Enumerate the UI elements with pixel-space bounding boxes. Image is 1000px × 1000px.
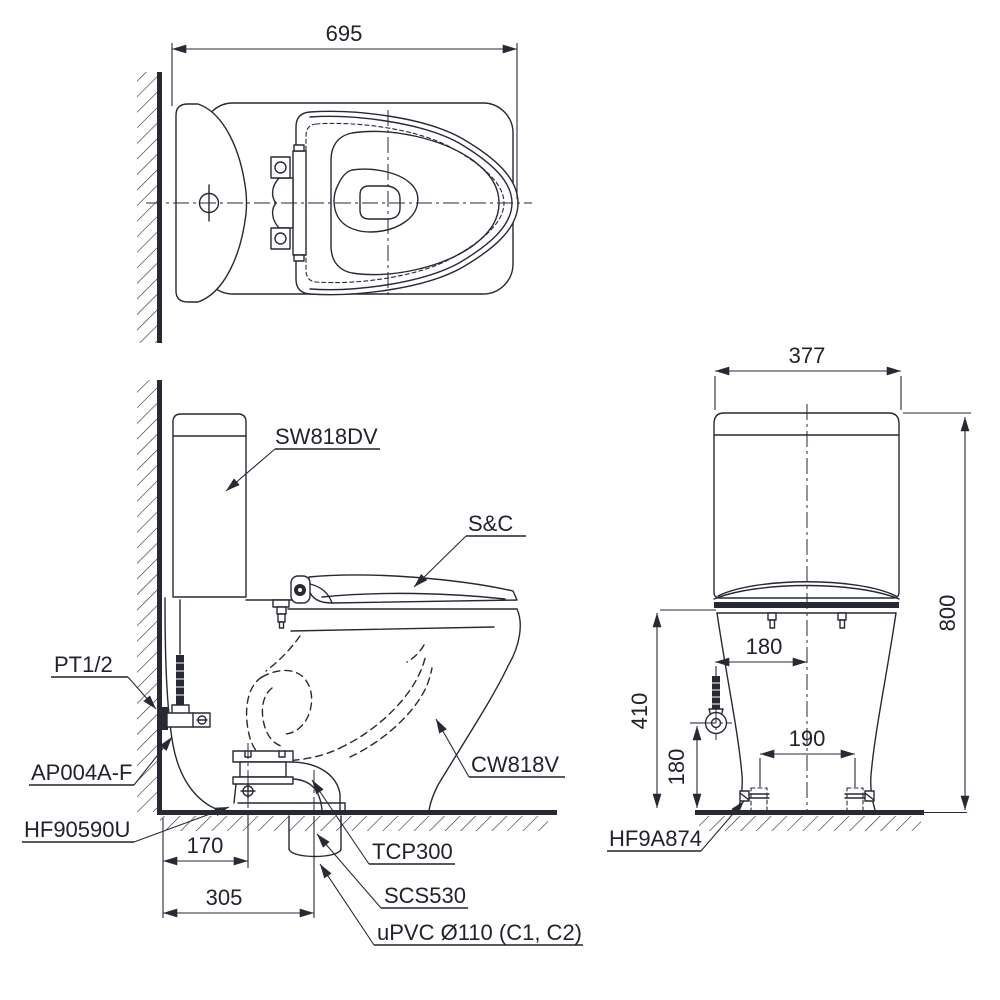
overall-length-dim-text: 695 [326, 21, 363, 46]
bolt-spacing-dim-text: 190 [789, 726, 826, 751]
side-view: SW818DV S&C PT1/2 AP004A-F HF90590U CW81… [22, 380, 583, 945]
trapway-hidden-lines [247, 636, 432, 761]
floor-bolt-right [845, 791, 874, 801]
tank-side-profile [173, 414, 246, 597]
rough-in-dim-text: 305 [206, 885, 243, 910]
floor-bolt-left [740, 791, 769, 801]
floor-hatching-side [160, 816, 548, 831]
dim-supply-offset: 180 [715, 634, 807, 662]
rim-height-dim-text: 410 [627, 693, 652, 730]
tank-model-label: SW818DV [275, 424, 378, 449]
floor-line-side [157, 810, 557, 815]
socket-label: SCS530 [384, 883, 466, 908]
overall-height-dim-text: 800 [935, 595, 960, 632]
seat-model-label: S&C [468, 511, 513, 536]
supply-height-dim-text: 180 [664, 749, 689, 786]
flange-label: HF90590U [24, 817, 130, 842]
wall-hatching-side [137, 380, 158, 812]
technical-drawing-canvas: 695 [0, 0, 1000, 1000]
dim-rough-in: 305 [163, 816, 314, 918]
bolt-hole-left [751, 788, 767, 812]
wall-line-top [157, 72, 162, 343]
top-view: 695 [137, 21, 532, 343]
toilet-installation-drawing-page: 695 [0, 0, 1000, 1000]
wall-hatching-top [137, 72, 158, 343]
supply-thread-label: PT1/2 [54, 652, 113, 677]
flange-setback-dim-text: 170 [187, 833, 224, 858]
dim-supply-height: 180 [664, 723, 703, 808]
adapter-label: TCP300 [372, 839, 453, 864]
dim-overall-height: 800 [903, 413, 971, 810]
supply-offset-dim-text: 180 [746, 634, 783, 659]
floor-line-front [695, 810, 924, 815]
front-view: 377 800 410 180 180 190 HF9A874 [607, 343, 971, 851]
bowl-side-profile [165, 598, 520, 811]
tank-width-dim-text: 377 [789, 343, 826, 368]
bowl-model-label: CW818V [471, 752, 559, 777]
dim-tank-width: 377 [715, 343, 901, 410]
floor-hatching-front [699, 816, 921, 831]
drain-pipe-label: uPVC Ø110 (C1, C2) [377, 920, 582, 945]
label-seat: S&C [414, 511, 526, 587]
bolt-hole-right [847, 788, 863, 812]
seat-side-profile [273, 575, 517, 628]
stop-valve-label: AP004A-F [31, 760, 133, 785]
label-bowl: CW818V [436, 719, 565, 777]
label-tank: SW818DV [226, 424, 380, 491]
bidet-nozzle [273, 600, 289, 628]
bolt-cap-label: HF9A874 [609, 826, 702, 851]
